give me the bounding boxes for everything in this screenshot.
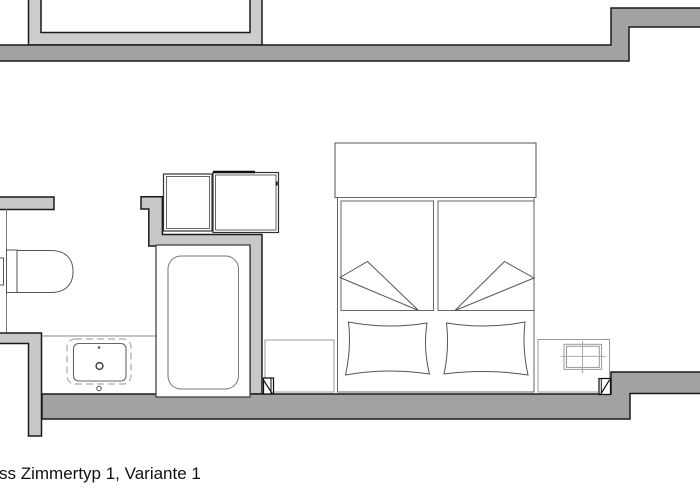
svg-text:ss Zimmertyp 1, Variante 1: ss Zimmertyp 1, Variante 1: [0, 464, 201, 483]
